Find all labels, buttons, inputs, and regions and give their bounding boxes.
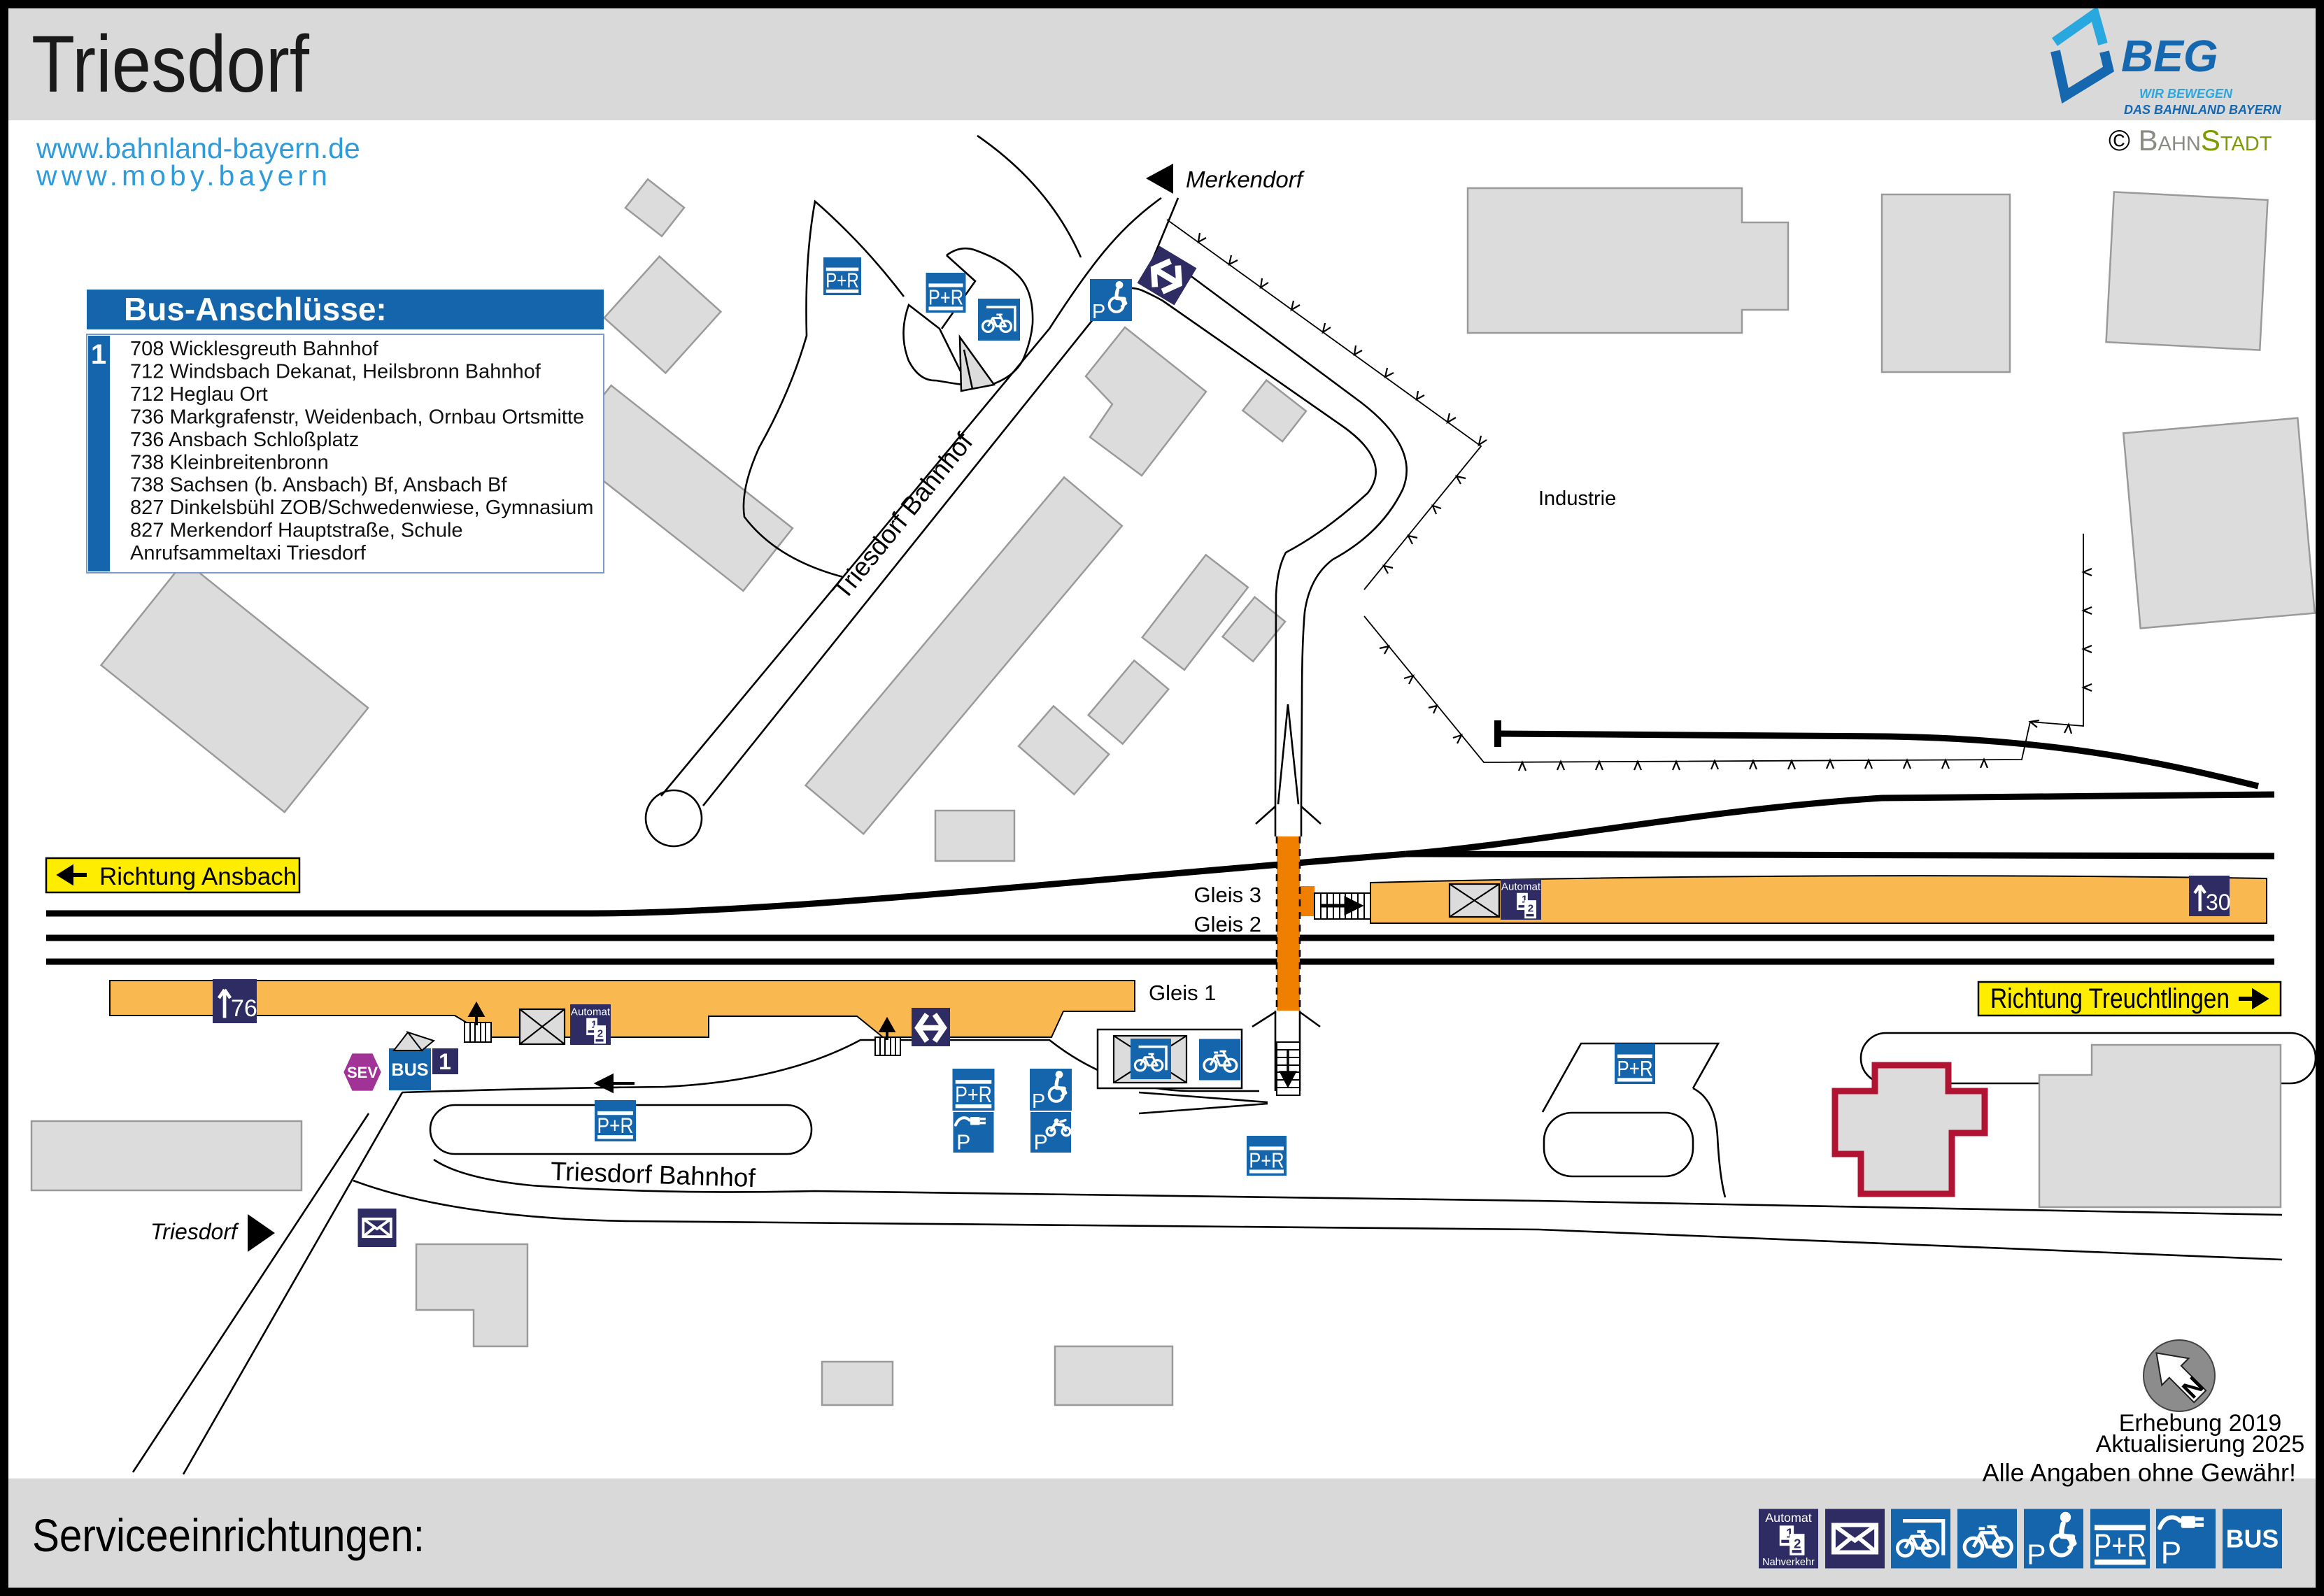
svg-text:1: 1 [91, 339, 106, 370]
svg-text:Serviceeinrichtungen:: Serviceeinrichtungen: [32, 1509, 425, 1561]
svg-text:Richtung Treuchtlingen: Richtung Treuchtlingen [1990, 983, 2230, 1014]
svg-text:Gleis 1: Gleis 1 [1149, 981, 1216, 1005]
svg-text:Aktualisierung 2025: Aktualisierung 2025 [2096, 1431, 2305, 1458]
svg-text:Triesdorf: Triesdorf [150, 1219, 239, 1244]
svg-text:DAS BAHNLAND BAYERN: DAS BAHNLAND BAYERN [2124, 103, 2282, 117]
svg-text:Merkendorf: Merkendorf [1186, 166, 1305, 192]
svg-text:Triesdorf: Triesdorf [31, 20, 310, 109]
svg-text:Gleis 3: Gleis 3 [1194, 883, 1261, 907]
svg-text:WIR BEWEGEN: WIR BEWEGEN [2139, 87, 2233, 101]
svg-text:1: 1 [439, 1049, 451, 1074]
svg-text:Bus-Anschlüsse:: Bus-Anschlüsse: [124, 291, 387, 327]
svg-text:www.moby.bayern: www.moby.bayern [36, 159, 332, 192]
svg-text:Richtung Ansbach: Richtung Ansbach [99, 863, 297, 890]
svg-text:Industrie: Industrie [1538, 487, 1616, 510]
svg-text:© BahnStadt: © BahnStadt [2109, 124, 2272, 157]
svg-text:BEG: BEG [2121, 31, 2218, 81]
svg-text:76: 76 [231, 995, 257, 1022]
svg-text:30: 30 [2206, 890, 2231, 915]
svg-text:Alle Angaben ohne Gewähr!: Alle Angaben ohne Gewähr! [1983, 1458, 2296, 1487]
svg-text:Gleis 2: Gleis 2 [1194, 912, 1261, 936]
